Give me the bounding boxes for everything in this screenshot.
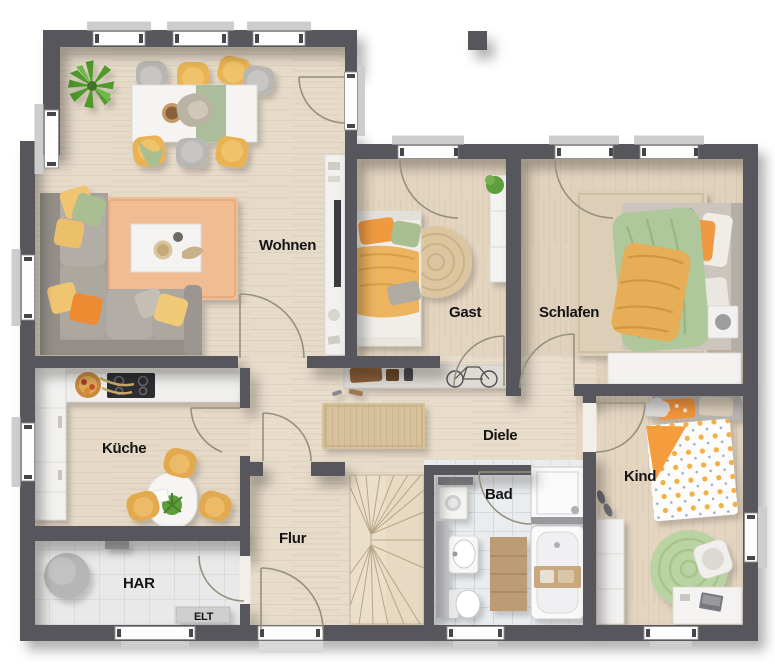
svg-text:Schlafen: Schlafen — [539, 304, 599, 321]
svg-text:HAR: HAR — [123, 575, 155, 592]
svg-text:Flur: Flur — [279, 530, 307, 547]
svg-text:ELT: ELT — [194, 611, 214, 623]
svg-text:Diele: Diele — [483, 427, 517, 444]
svg-text:Wohnen: Wohnen — [259, 237, 316, 254]
svg-text:Küche: Küche — [102, 440, 146, 457]
svg-text:Gast: Gast — [449, 304, 481, 321]
svg-text:Kind: Kind — [624, 468, 656, 485]
svg-text:Bad: Bad — [485, 486, 513, 503]
